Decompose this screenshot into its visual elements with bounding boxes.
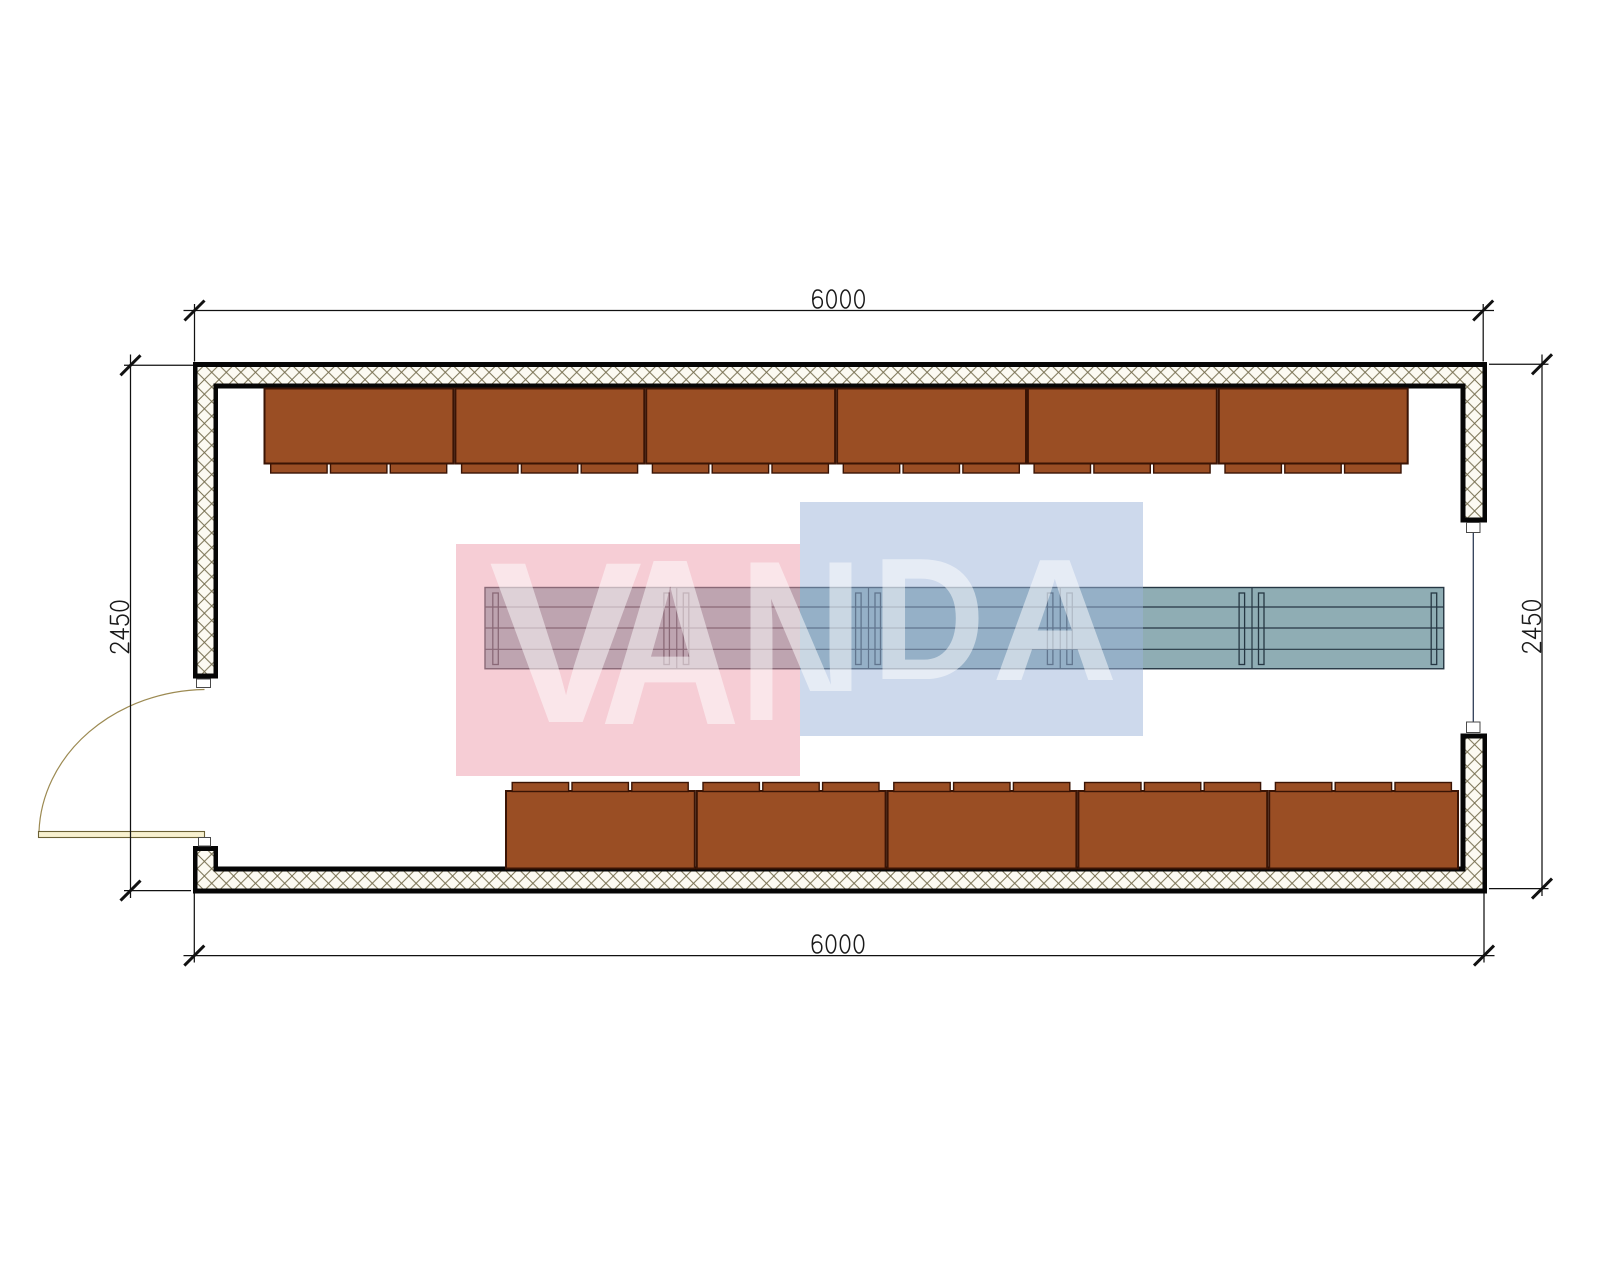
svg-text:A: A — [992, 522, 1118, 717]
svg-text:A: A — [600, 510, 740, 775]
svg-text:D: D — [872, 522, 985, 716]
